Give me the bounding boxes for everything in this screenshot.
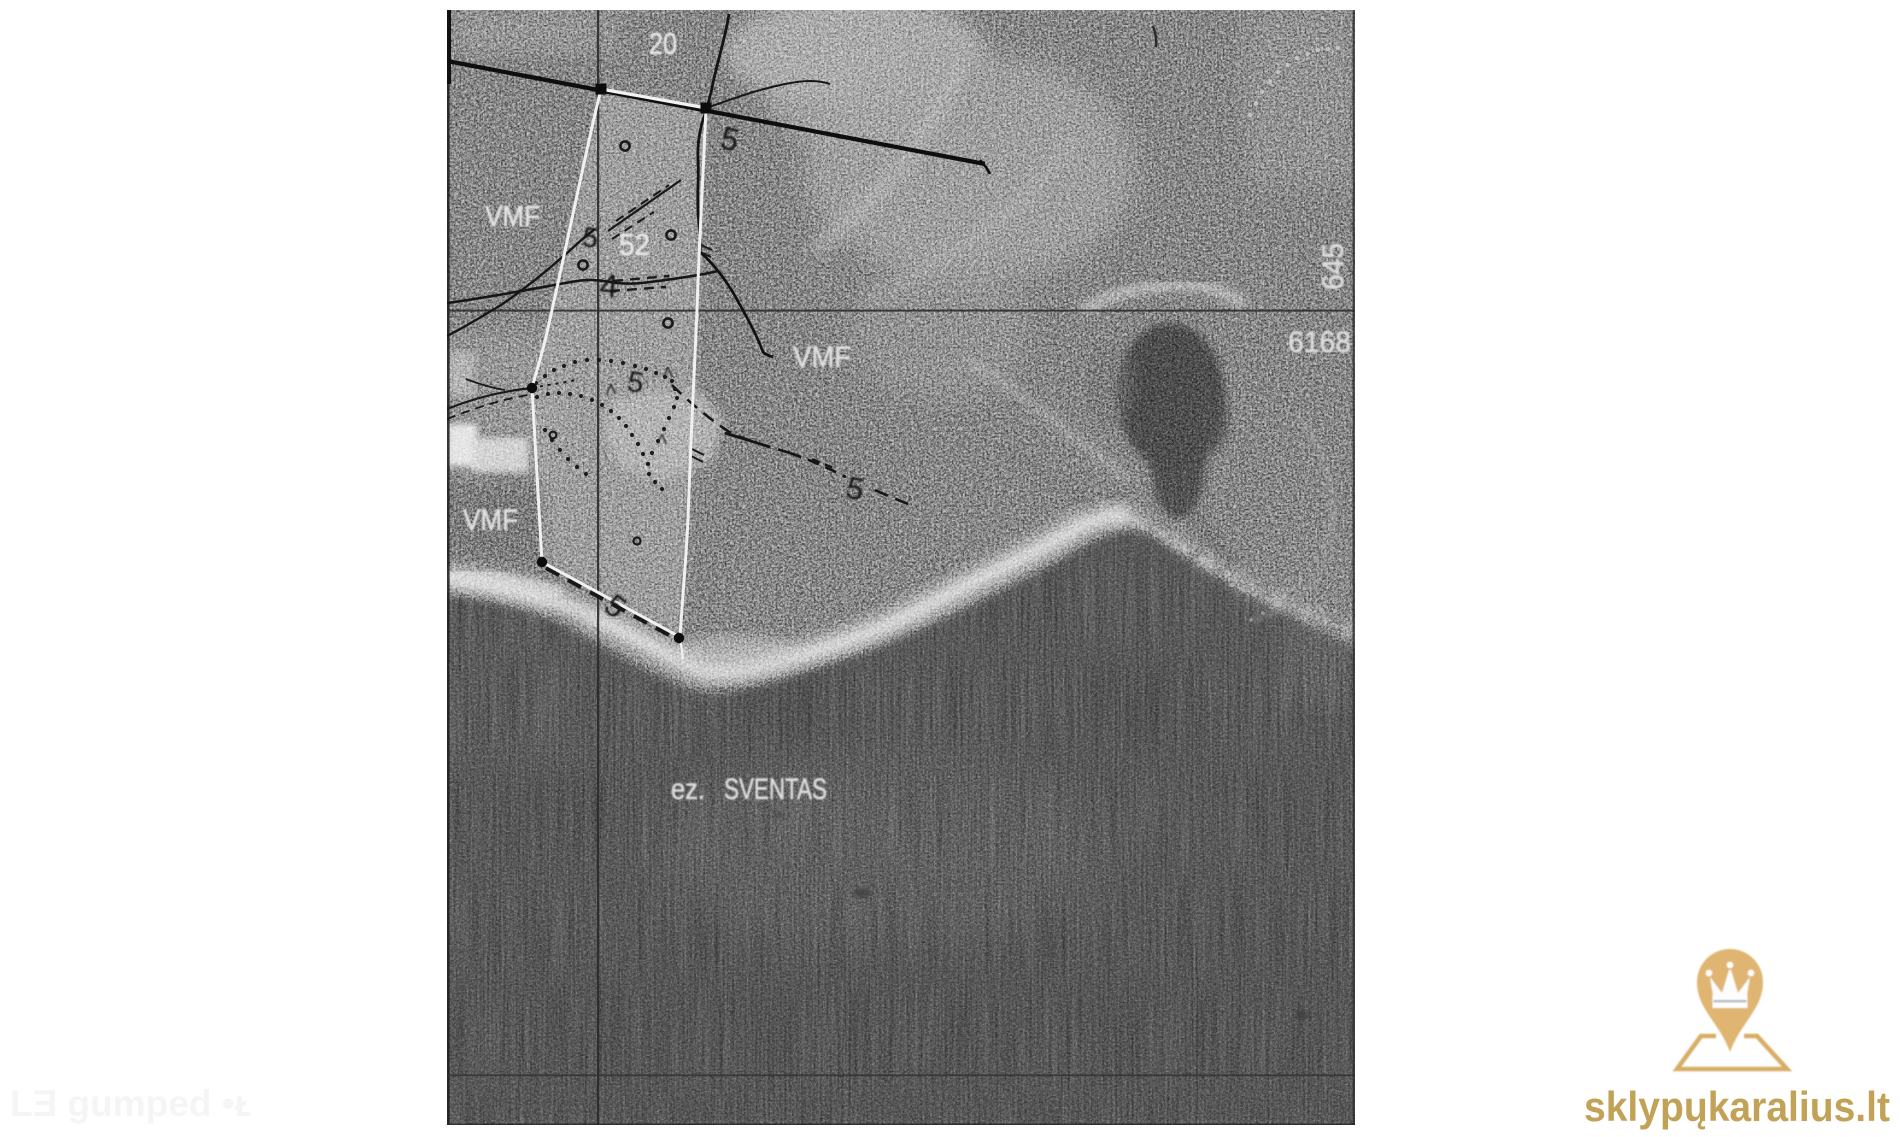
svg-text:ez.: ez. [671,773,705,806]
svg-text:Λ: Λ [657,431,667,448]
svg-text:6168: 6168 [1288,326,1351,359]
svg-text:VMF: VMF [463,504,518,537]
svg-text:SVENTAS: SVENTAS [724,773,827,806]
svg-text:4: 4 [598,267,619,305]
svg-text:VMF: VMF [793,341,851,374]
svg-text:645: 645 [1317,243,1350,290]
svg-text:sklypųkaralius.lt: sklypųkaralius.lt [1584,1083,1890,1130]
svg-text:LƎ ɡumped •ᴌ: LƎ ɡumped •ᴌ [10,1083,251,1124]
svg-text:VMF: VMF [485,201,540,233]
svg-text:Λ: Λ [663,364,673,381]
svg-text:52: 52 [619,227,650,262]
svg-text:20: 20 [649,26,677,61]
svg-text:Λ: Λ [606,381,616,398]
